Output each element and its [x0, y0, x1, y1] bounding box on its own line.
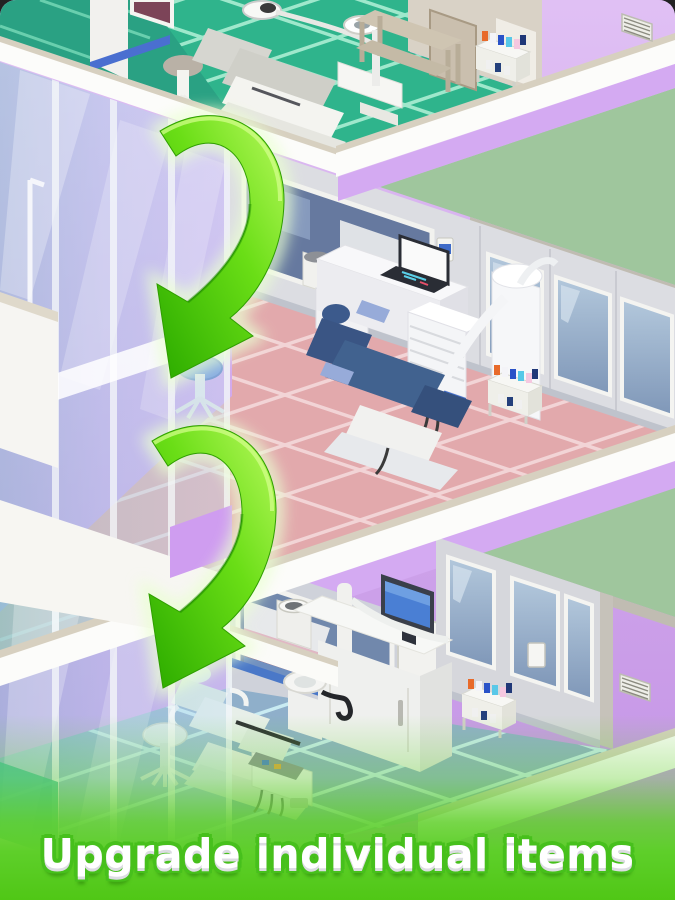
- caption-text: Upgrade individual items: [0, 830, 675, 878]
- app-store-screenshot: Upgrade individual items: [0, 0, 675, 900]
- isometric-clinic-scene: [0, 0, 675, 900]
- window-e: [512, 578, 558, 689]
- window-f: [566, 596, 592, 700]
- light-switch: [528, 643, 545, 667]
- left-wall-piece: [0, 298, 58, 468]
